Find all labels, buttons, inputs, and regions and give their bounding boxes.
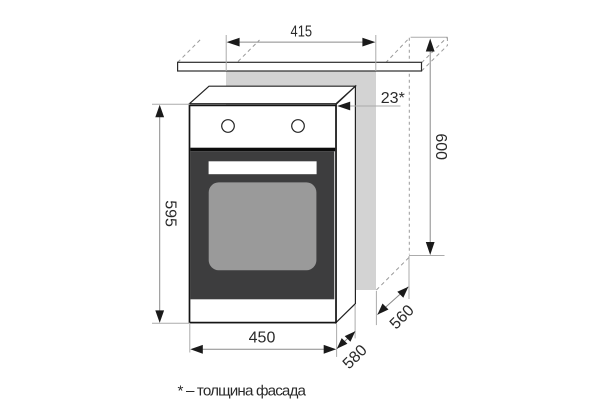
svg-text:560: 560 bbox=[387, 302, 418, 333]
svg-text:450: 450 bbox=[249, 330, 276, 347]
svg-text:600: 600 bbox=[432, 133, 449, 160]
svg-text:415: 415 bbox=[291, 23, 313, 40]
svg-text:23*: 23* bbox=[381, 90, 405, 107]
svg-text:595: 595 bbox=[161, 200, 178, 227]
svg-text:580: 580 bbox=[340, 342, 371, 373]
svg-text:* – толщина фасада: * – толщина фасада bbox=[178, 382, 307, 399]
